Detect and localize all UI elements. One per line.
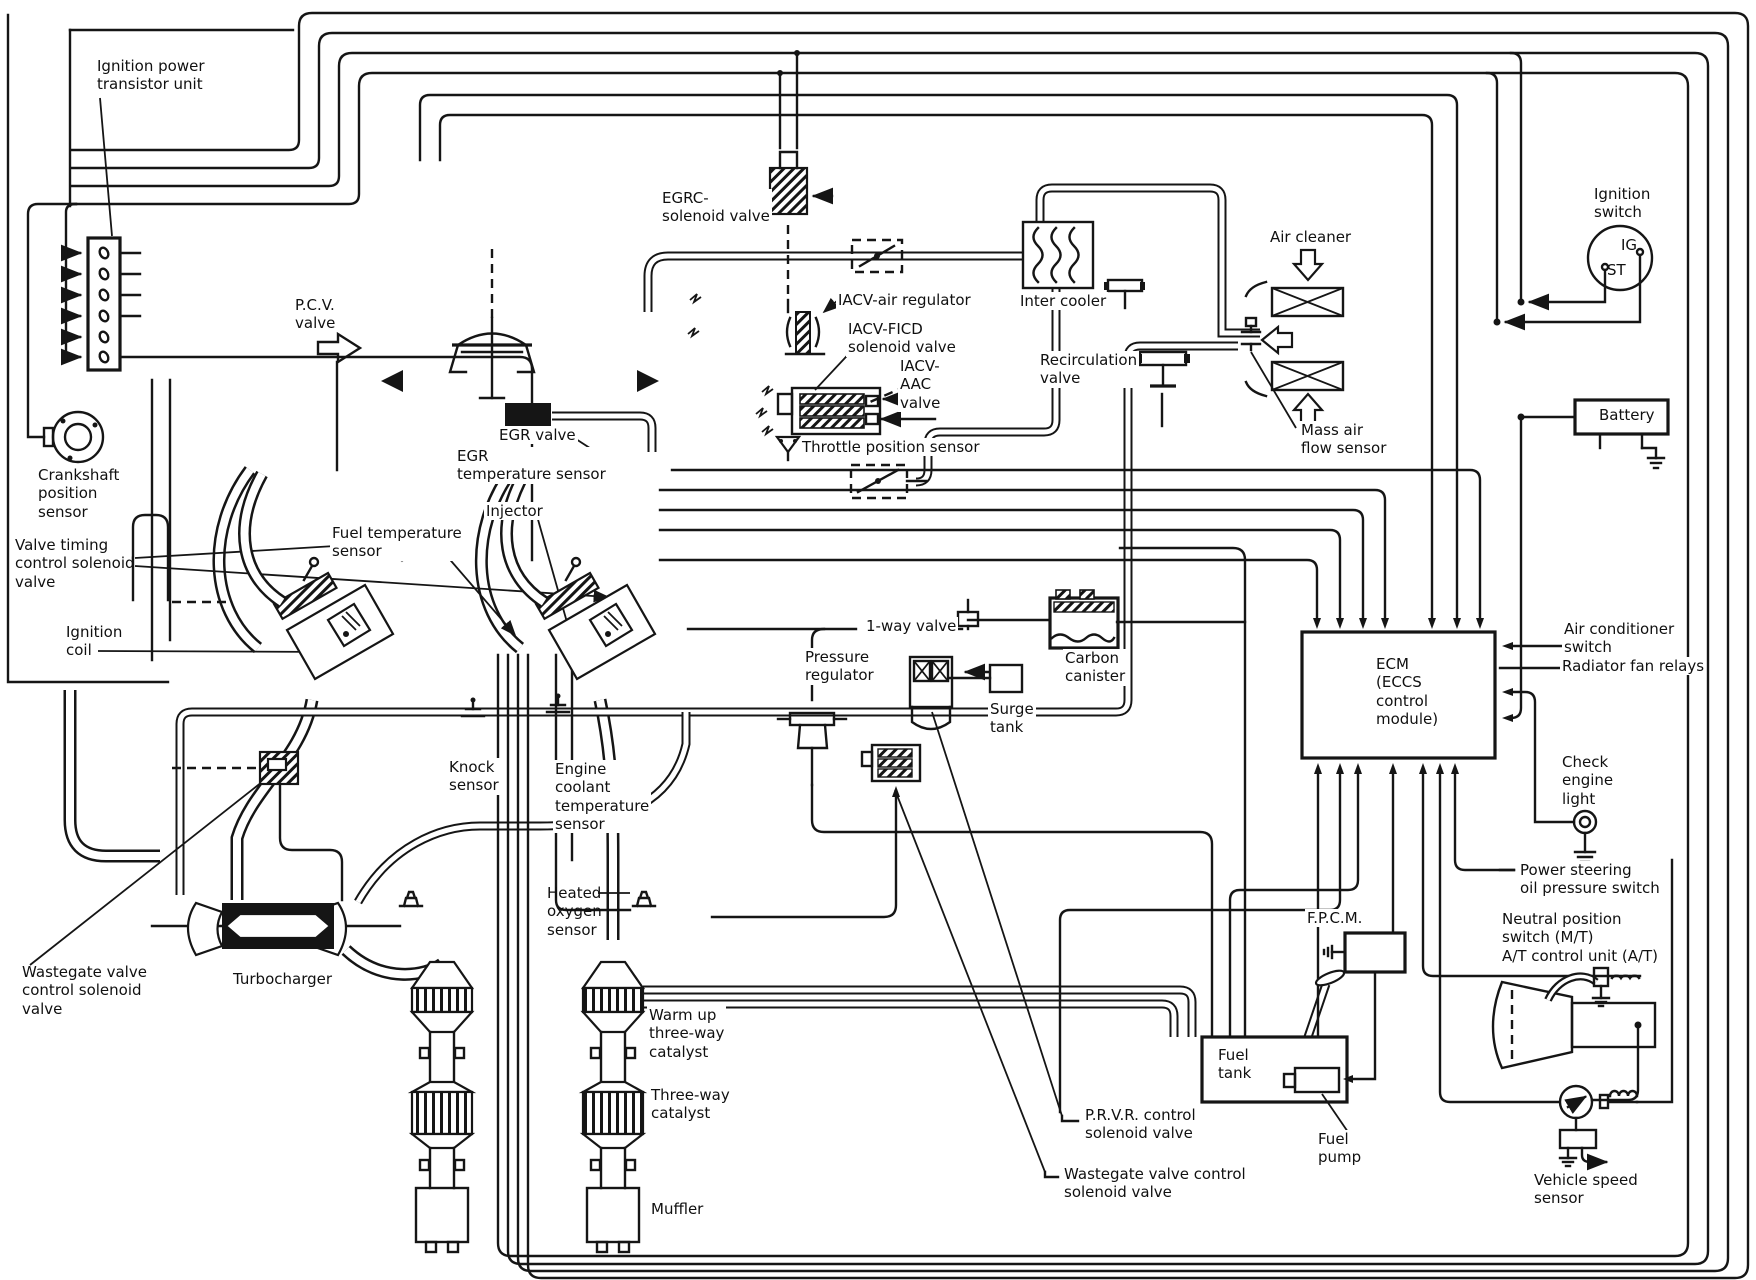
recirculation-valve-symbol	[1136, 352, 1190, 386]
carbon-canister-symbol	[1050, 590, 1118, 648]
neutral-position-switch-symbol	[1493, 968, 1655, 1100]
label-fuel-pump: Fuel pump	[1316, 1130, 1363, 1167]
air-cleaner-symbol	[1246, 250, 1343, 424]
label-ignition-power-transistor-unit: Ignition power transistor unit	[97, 57, 204, 94]
label-pressure-regulator: Pressure regulator	[803, 648, 876, 685]
intercooler-symbol	[1023, 222, 1093, 288]
fpcm-symbol	[1324, 933, 1405, 972]
vehicle-speed-sensor-symbol	[1560, 1086, 1637, 1166]
wastegate-solenoid-left-symbol	[260, 752, 342, 900]
bypass-valve-icon	[1104, 280, 1145, 308]
exhaust-stack-right	[583, 962, 643, 1252]
label-surge-tank: Surge tank	[988, 700, 1036, 737]
egrc-solenoid-valve-symbol	[770, 152, 832, 214]
diagram-line-art	[0, 0, 1756, 1280]
label-ignition-coil: Ignition coil	[66, 623, 122, 660]
label-ignition-switch: Ignition switch	[1594, 185, 1650, 222]
label-warm-up-three-way-catalyst: Warm up three-way catalyst	[647, 1006, 726, 1061]
label-vehicle-speed-sensor: Vehicle speed sensor	[1532, 1171, 1640, 1208]
label-wastegate-valve-control-solenoid-valve-left: Wastegate valve control solenoid valve	[22, 963, 147, 1018]
label-pcv-valve: P.C.V. valve	[295, 296, 335, 333]
label-air-conditioner-switch: Air conditioner switch	[1562, 620, 1676, 657]
label-egrc-solenoid-valve: EGRC- solenoid valve	[660, 189, 772, 226]
label-iacv-aac-valve: IACV- AAC valve	[898, 357, 942, 412]
wiring-harness	[8, 13, 1748, 1278]
label-inter-cooler: Inter cooler	[1018, 292, 1108, 310]
one-way-valve-symbol	[958, 600, 978, 629]
label-check-engine-light: Check engine light	[1560, 753, 1615, 808]
label-egr-temperature-sensor: EGR temperature sensor	[455, 447, 608, 484]
label-throttle-position-sensor: Throttle position sensor	[800, 438, 982, 456]
label-valve-timing-control-solenoid-valve: Valve timing control solenoid valve	[15, 536, 135, 591]
check-engine-light-symbol	[1574, 811, 1596, 862]
iacv-air-regulator-symbol	[786, 300, 838, 354]
label-air-cleaner: Air cleaner	[1268, 228, 1353, 246]
label-prvr-control-solenoid-valve: P.R.V.R. control solenoid valve	[1083, 1106, 1198, 1143]
label-neutral-position-switch: Neutral position switch (M/T) A/T contro…	[1500, 910, 1660, 965]
turbocharger-symbol	[152, 903, 400, 955]
label-crankshaft-position-sensor: Crankshaft position sensor	[38, 466, 119, 521]
label-ecm: ECM (ECCS control module)	[1376, 655, 1438, 728]
label-wastegate-valve-control-solenoid-valve-bottom: Wastegate valve control solenoid valve	[1062, 1165, 1248, 1202]
label-mass-air-flow-sensor: Mass air flow sensor	[1299, 421, 1388, 458]
label-heated-oxygen-sensor: Heated oxygen sensor	[547, 884, 602, 939]
label-fpcm: F.P.C.M.	[1305, 909, 1364, 927]
label-knock-sensor: Knock sensor	[447, 758, 501, 795]
label-radiator-fan-relays: Radiator fan relays	[1560, 657, 1706, 675]
label-ignition-switch-st: ST	[1607, 261, 1626, 279]
pressure-regulator-symbol	[778, 713, 846, 785]
label-power-steering-oil-pressure-switch: Power steering oil pressure switch	[1518, 861, 1662, 898]
label-carbon-canister: Carbon canister	[1063, 649, 1127, 686]
label-injector: Injector	[484, 502, 545, 520]
label-egr-valve: EGR valve	[497, 426, 578, 444]
label-iacv-ficd-solenoid-valve: IACV-FICD solenoid valve	[846, 320, 958, 357]
label-fuel-temperature-sensor: Fuel temperature sensor	[330, 524, 464, 561]
label-muffler: Muffler	[649, 1200, 705, 1218]
label-one-way-valve: 1-way valve	[864, 617, 958, 635]
label-ignition-switch-ig: IG	[1621, 236, 1637, 254]
engine-cylinder-left	[245, 474, 393, 679]
label-iacv-air-regulator: IACV-air regulator	[836, 291, 973, 309]
exhaust-stack-left	[412, 962, 472, 1252]
label-engine-coolant-temperature-sensor: Engine coolant temperature sensor	[553, 760, 651, 833]
label-recirculation-valve: Recirculation valve	[1038, 351, 1139, 388]
label-turbocharger: Turbocharger	[233, 970, 332, 988]
label-fuel-tank: Fuel tank	[1218, 1046, 1251, 1083]
label-three-way-catalyst: Three-way catalyst	[649, 1086, 732, 1123]
label-battery: Battery	[1599, 406, 1655, 424]
egr-valve-symbol	[381, 318, 659, 440]
diagram-page: Ignition power transistor unit Crankshaf…	[0, 0, 1756, 1280]
